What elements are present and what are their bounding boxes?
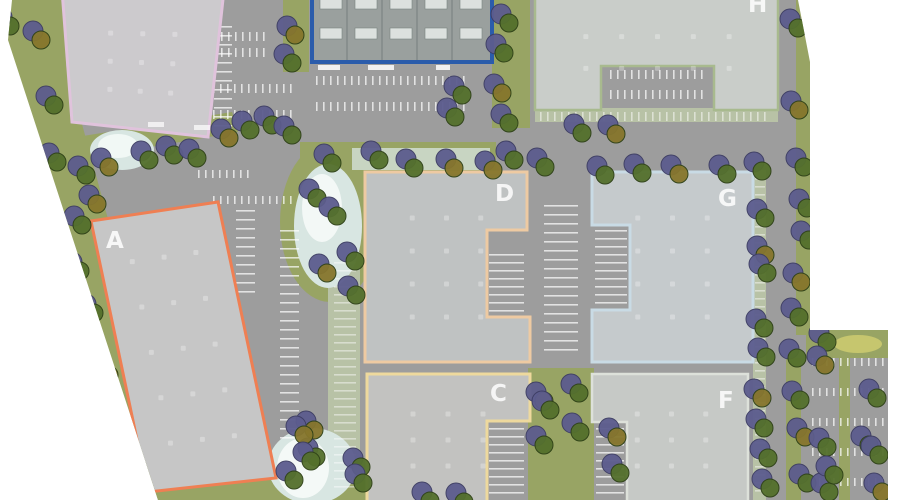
building-g-label: G bbox=[718, 186, 737, 212]
building-northwest-footprint bbox=[62, 0, 224, 137]
site-plan: A C D F G H bbox=[0, 0, 900, 500]
tree bbox=[104, 427, 131, 455]
building-h-label: H bbox=[748, 0, 767, 18]
building-f-label: F bbox=[718, 388, 734, 414]
building-c-label: C bbox=[490, 381, 507, 407]
tree bbox=[96, 394, 123, 422]
building-d-label: D bbox=[495, 181, 514, 207]
tree bbox=[114, 464, 141, 492]
site-plan-canvas: A C D F G H bbox=[0, 0, 900, 500]
building-a-label: A bbox=[106, 228, 124, 254]
